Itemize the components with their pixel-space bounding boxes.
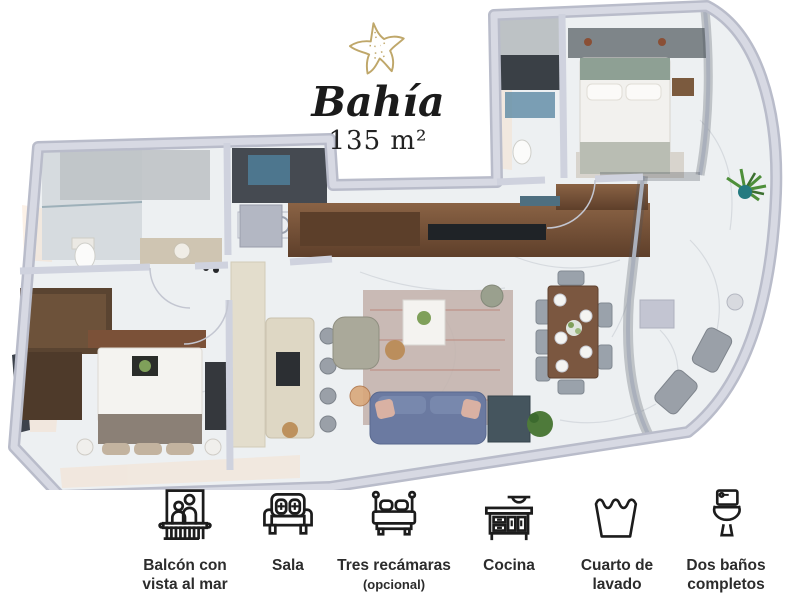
balcony-icon bbox=[156, 486, 214, 546]
amenity-label: Tres recámaras bbox=[337, 557, 451, 576]
bed-icon bbox=[365, 488, 423, 546]
sofa-icon bbox=[259, 488, 317, 546]
plan-title: Bahía bbox=[278, 82, 478, 123]
plan-area: 135 m² bbox=[278, 126, 478, 156]
amenity-recamaras: Tres recámaras (opcional) bbox=[334, 482, 454, 595]
amenity-sala: Sala bbox=[242, 482, 334, 595]
page: Bahía 135 m² Balcón con vista al mar bbox=[0, 0, 790, 614]
laundry-icon bbox=[588, 490, 646, 546]
amenity-label: Cuarto de lavado bbox=[564, 557, 670, 595]
toilet-icon bbox=[698, 484, 754, 546]
amenity-label: Sala bbox=[272, 557, 304, 576]
amenity-lavado: Cuarto de lavado bbox=[564, 482, 670, 595]
amenity-label: Balcón con vista al mar bbox=[128, 557, 242, 595]
kitchen-icon bbox=[480, 488, 538, 546]
amenity-cocina: Cocina bbox=[454, 482, 564, 595]
amenities-row: Balcón con vista al mar Sala bbox=[128, 482, 782, 595]
starfish-icon bbox=[346, 18, 410, 80]
amenity-label: Cocina bbox=[483, 557, 535, 576]
amenity-banos: Dos baños completos bbox=[670, 482, 782, 595]
title-block: Bahía 135 m² bbox=[278, 18, 478, 156]
amenity-balcony: Balcón con vista al mar bbox=[128, 482, 242, 595]
amenity-label: Dos baños completos bbox=[670, 557, 782, 595]
amenity-note: (opcional) bbox=[363, 577, 425, 592]
